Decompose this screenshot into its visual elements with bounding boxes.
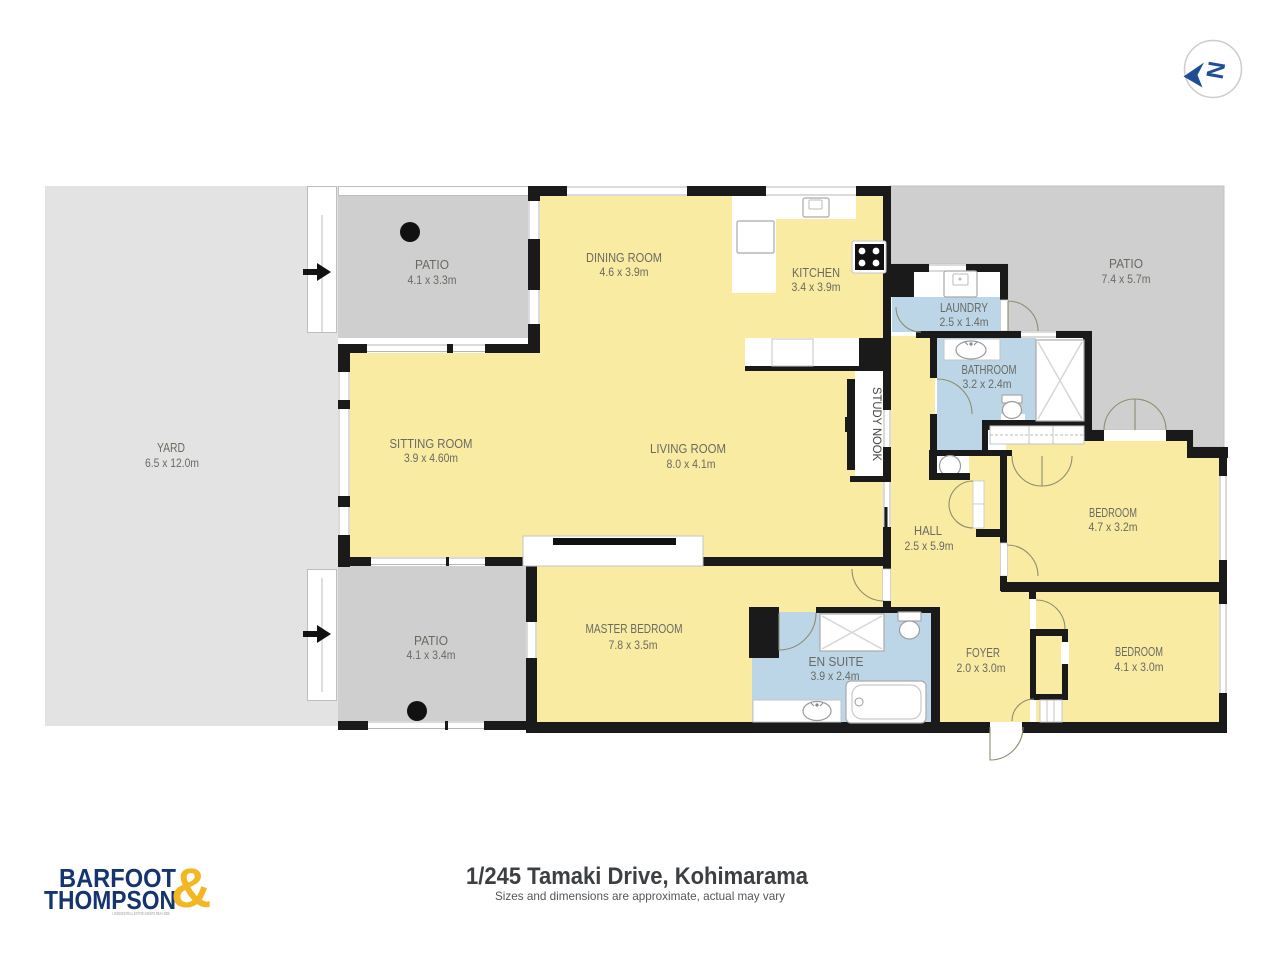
svg-text:YARD: YARD [157, 440, 185, 455]
svg-text:LIVING ROOM: LIVING ROOM [650, 441, 726, 456]
svg-text:3.9 x 4.60m: 3.9 x 4.60m [404, 451, 458, 465]
svg-text:PATIO: PATIO [1109, 256, 1143, 271]
svg-text:2.5 x 5.9m: 2.5 x 5.9m [905, 539, 954, 553]
svg-text:BATHROOM: BATHROOM [962, 362, 1017, 377]
svg-text:HALL: HALL [914, 523, 942, 538]
svg-text:4.7 x 3.2m: 4.7 x 3.2m [1089, 520, 1138, 534]
svg-text:6.5 x 12.0m: 6.5 x 12.0m [145, 456, 199, 470]
svg-text:7.8 x 3.5m: 7.8 x 3.5m [609, 638, 658, 652]
svg-text:MASTER BEDROOM: MASTER BEDROOM [586, 621, 683, 636]
svg-text:8.0 x 4.1m: 8.0 x 4.1m [667, 457, 716, 471]
svg-text:3.9 x 2.4m: 3.9 x 2.4m [811, 669, 860, 683]
svg-text:&: & [171, 856, 211, 919]
svg-text:1/245 Tamaki Drive, Kohimarama: 1/245 Tamaki Drive, Kohimarama [466, 863, 808, 890]
svg-text:2.0 x 3.0m: 2.0 x 3.0m [957, 661, 1006, 675]
svg-text:3.4 x 3.9m: 3.4 x 3.9m [792, 280, 841, 294]
svg-text:LICENSED REAL ESTATE AGENTS RE: LICENSED REAL ESTATE AGENTS REAA 2008 [113, 911, 170, 916]
svg-text:Sizes and dimensions are appro: Sizes and dimensions are approximate, ac… [495, 889, 785, 903]
svg-text:4.1 x 3.3m: 4.1 x 3.3m [408, 273, 457, 287]
svg-text:KITCHEN: KITCHEN [792, 265, 840, 280]
svg-text:3.2 x 2.4m: 3.2 x 2.4m [963, 377, 1012, 391]
svg-text:4.1 x 3.0m: 4.1 x 3.0m [1115, 660, 1164, 674]
svg-text:LAUNDRY: LAUNDRY [940, 300, 988, 315]
svg-text:DINING ROOM: DINING ROOM [586, 250, 662, 265]
svg-text:PATIO: PATIO [414, 633, 448, 648]
svg-text:BEDROOM: BEDROOM [1089, 505, 1137, 520]
svg-text:2.5 x 1.4m: 2.5 x 1.4m [940, 315, 989, 329]
svg-text:EN SUITE: EN SUITE [809, 654, 864, 669]
svg-text:FOYER: FOYER [966, 645, 1000, 660]
svg-text:PATIO: PATIO [415, 257, 449, 272]
svg-text:STUDY NOOK: STUDY NOOK [870, 387, 882, 461]
svg-text:4.6 x 3.9m: 4.6 x 3.9m [600, 265, 649, 279]
svg-text:4.1 x 3.4m: 4.1 x 3.4m [407, 648, 456, 662]
svg-text:7.4 x 5.7m: 7.4 x 5.7m [1102, 272, 1151, 286]
svg-text:SITTING ROOM: SITTING ROOM [390, 436, 473, 451]
svg-text:BEDROOM: BEDROOM [1115, 644, 1163, 659]
